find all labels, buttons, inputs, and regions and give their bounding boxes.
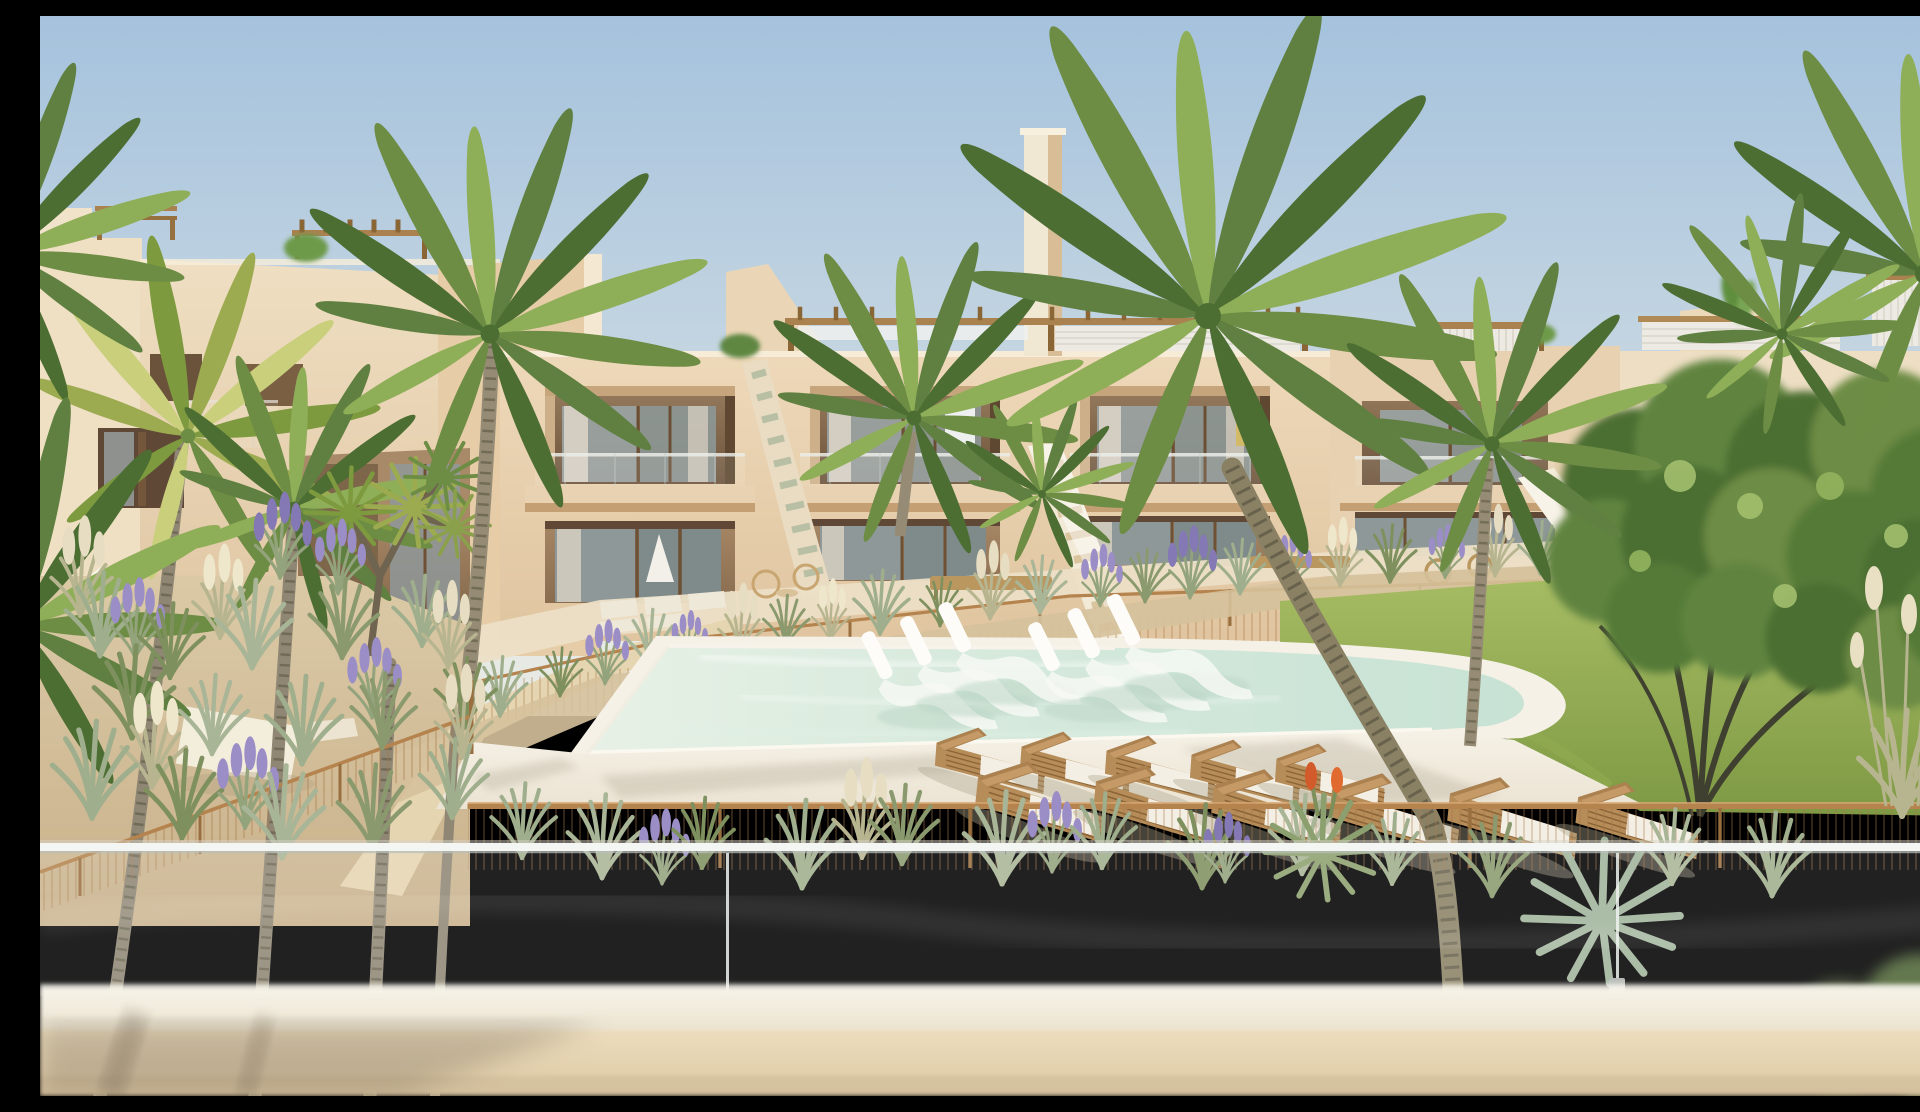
architectural-render bbox=[40, 16, 1920, 1096]
foreground-glass-balustrade bbox=[40, 840, 1920, 996]
foreground-wall bbox=[40, 984, 1920, 1096]
